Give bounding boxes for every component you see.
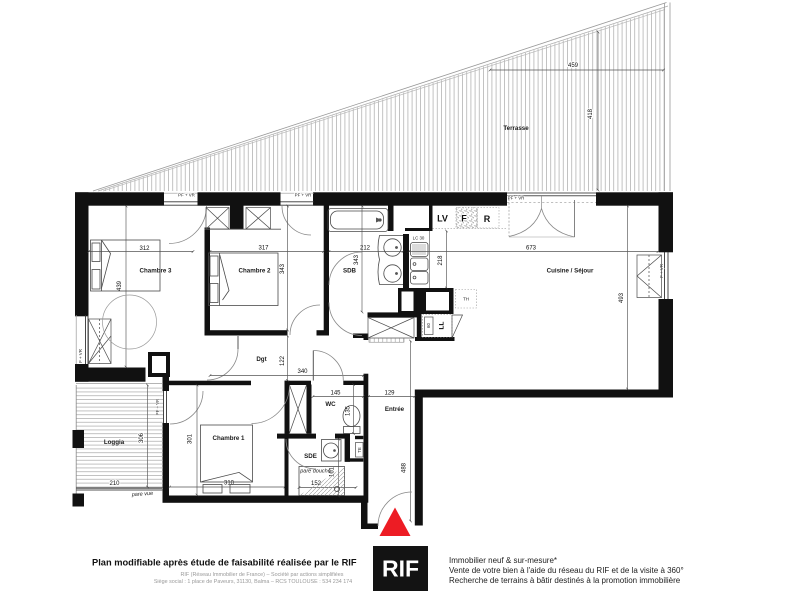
svg-text:312: 312 [139, 246, 150, 252]
svg-text:TH: TH [463, 297, 469, 302]
svg-text:SDE: SDE [304, 453, 317, 460]
svg-text:R: R [484, 214, 491, 224]
svg-text:Chambre 1: Chambre 1 [213, 435, 246, 442]
svg-text:Plan modifiable après étude de: Plan modifiable après étude de faisabili… [92, 558, 357, 568]
svg-text:439: 439 [117, 280, 123, 291]
svg-text:PF + VR: PF + VR [178, 193, 195, 198]
svg-text:317: 317 [258, 246, 269, 252]
svg-text:Immobilier neuf & sur-mesure*: Immobilier neuf & sur-mesure* [449, 556, 557, 565]
svg-text:Dgt: Dgt [256, 356, 266, 363]
svg-text:RIF: RIF [382, 556, 419, 582]
svg-text:LC 30: LC 30 [413, 236, 425, 241]
svg-text:Terrasse: Terrasse [503, 125, 529, 132]
svg-text:Chambre 2: Chambre 2 [239, 268, 272, 275]
svg-text:212: 212 [360, 246, 371, 252]
svg-text:Loggia: Loggia [104, 439, 125, 446]
svg-text:Chambre 3: Chambre 3 [140, 268, 173, 275]
svg-text:RIF (Réseau Immobilier de Fran: RIF (Réseau Immobilier de France) – Soci… [181, 572, 344, 578]
svg-text:60: 60 [426, 323, 431, 328]
svg-text:TE: TE [357, 447, 362, 453]
svg-text:145: 145 [330, 391, 341, 397]
svg-text:343: 343 [354, 254, 360, 265]
svg-text:301: 301 [188, 433, 194, 444]
svg-text:493: 493 [619, 292, 625, 303]
svg-text:PF + VR: PF + VR [508, 196, 525, 201]
svg-text:343: 343 [280, 263, 286, 274]
svg-text:LV: LV [437, 214, 448, 224]
svg-text:Entrée: Entrée [385, 406, 405, 413]
svg-text:PF + VR: PF + VR [295, 193, 312, 198]
svg-text:pare douche: pare douche [299, 469, 331, 475]
svg-text:Recherche de terrains à bâtir: Recherche de terrains à bâtir destinés à… [449, 576, 681, 585]
svg-text:122: 122 [280, 355, 286, 366]
svg-text:129: 129 [384, 391, 395, 397]
svg-text:LL: LL [439, 322, 446, 330]
svg-text:210: 210 [109, 481, 120, 487]
svg-text:418: 418 [588, 108, 594, 119]
svg-text:WC: WC [325, 401, 336, 408]
svg-text:218: 218 [438, 255, 444, 266]
svg-text:135: 135 [346, 405, 352, 416]
svg-text:340: 340 [297, 369, 308, 375]
svg-text:SDB: SDB [343, 268, 357, 275]
svg-text:488: 488 [402, 462, 408, 473]
svg-text:310: 310 [224, 481, 235, 487]
svg-text:F + VR: F + VR [78, 349, 83, 363]
svg-text:306: 306 [139, 432, 145, 443]
svg-text:Cuisine / Séjour: Cuisine / Séjour [547, 268, 594, 275]
svg-text:Siège social : 1 place de Pave: Siège social : 1 place de Paveurs, 31130… [154, 579, 352, 585]
svg-text:Vente de votre bien à l'aide d: Vente de votre bien à l'aide du réseau d… [449, 566, 684, 575]
svg-text:459: 459 [568, 63, 579, 69]
svg-text:F: F [461, 214, 467, 224]
svg-text:673: 673 [526, 246, 537, 252]
